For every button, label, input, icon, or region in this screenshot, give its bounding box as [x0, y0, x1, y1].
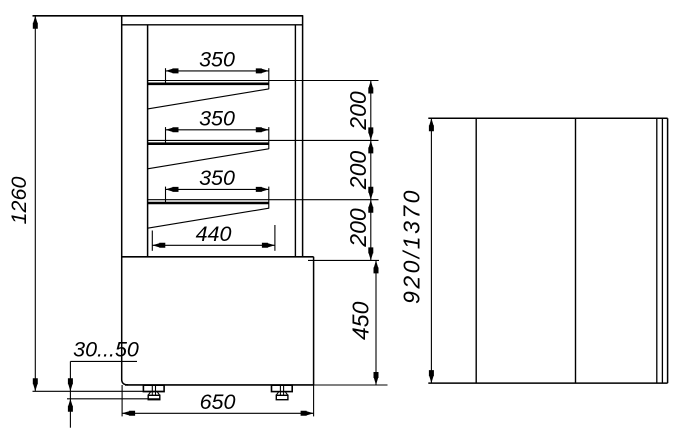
svg-text:30...50: 30...50 [73, 337, 139, 361]
svg-text:350: 350 [199, 106, 235, 130]
svg-text:650: 650 [200, 390, 236, 414]
svg-text:450: 450 [348, 301, 374, 340]
svg-text:350: 350 [199, 166, 235, 190]
svg-text:1260: 1260 [7, 177, 31, 225]
svg-text:920/1370: 920/1370 [399, 188, 425, 304]
svg-text:350: 350 [199, 47, 235, 71]
svg-text:200: 200 [345, 91, 371, 131]
svg-text:440: 440 [196, 222, 232, 246]
svg-text:200: 200 [345, 208, 371, 248]
svg-text:200: 200 [345, 151, 371, 191]
